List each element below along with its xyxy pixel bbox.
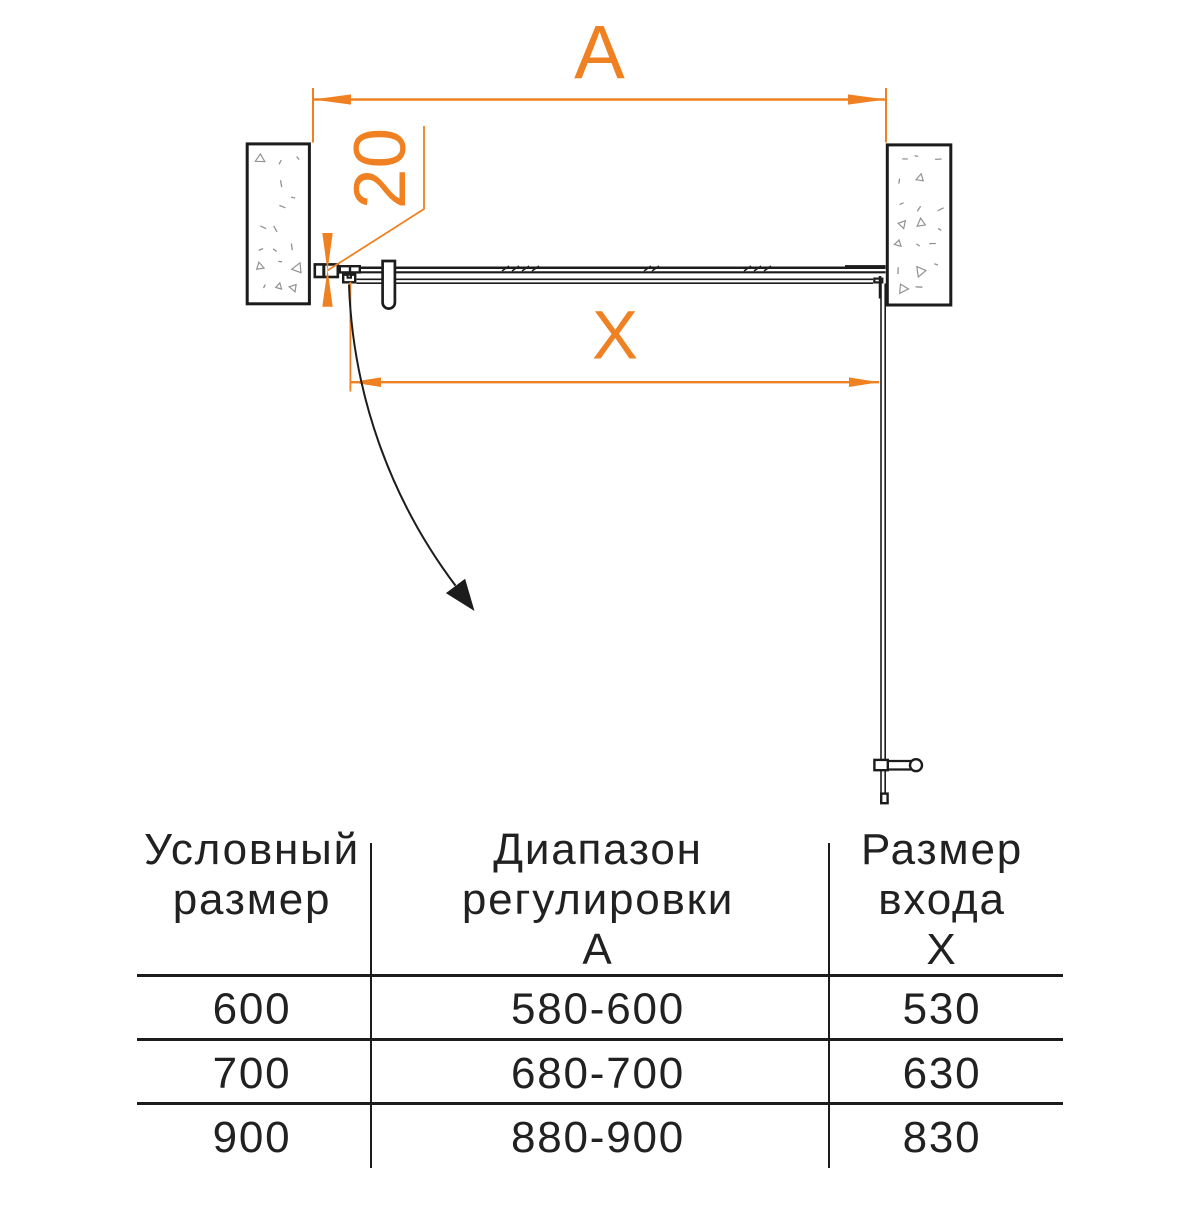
svg-text:Диапазон: Диапазон [493,825,703,874]
svg-text:А: А [582,925,613,974]
svg-text:Размер: Размер [861,825,1023,874]
svg-text:20: 20 [340,128,421,209]
svg-text:Х: Х [926,925,957,974]
svg-text:530: 530 [903,985,982,1034]
svg-text:900: 900 [213,1113,292,1162]
svg-text:регулировки: регулировки [462,875,734,924]
svg-text:Условный: Условный [144,825,360,874]
svg-text:размер: размер [173,875,332,924]
svg-text:630: 630 [903,1049,982,1098]
svg-text:X: X [592,297,638,374]
svg-text:700: 700 [213,1049,292,1098]
svg-text:входа: входа [878,875,1006,924]
svg-text:A: A [574,11,625,96]
svg-text:580-600: 580-600 [511,985,685,1034]
svg-text:830: 830 [903,1113,982,1162]
svg-text:600: 600 [213,985,292,1034]
svg-text:680-700: 680-700 [511,1049,685,1098]
svg-text:880-900: 880-900 [511,1113,685,1162]
